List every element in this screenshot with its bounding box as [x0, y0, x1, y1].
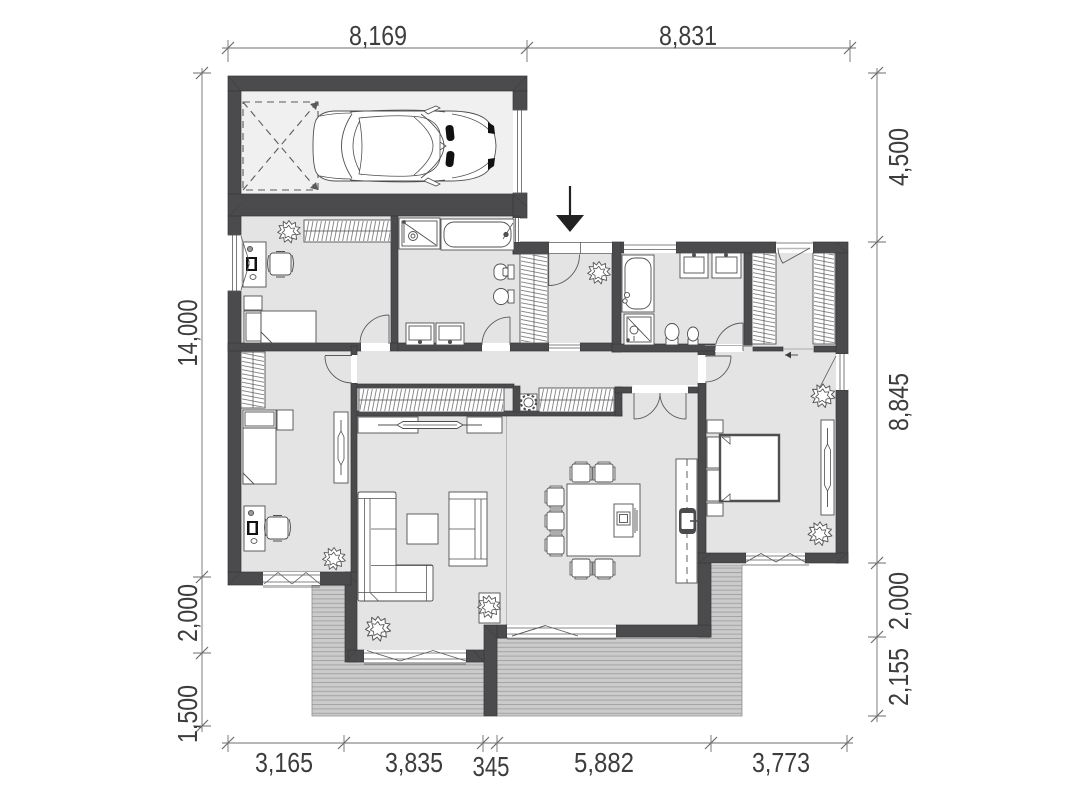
svg-text:4,500: 4,500 [883, 128, 914, 186]
svg-text:1,500: 1,500 [172, 685, 203, 743]
svg-text:2,000: 2,000 [172, 584, 203, 642]
svg-text:345: 345 [473, 751, 510, 782]
svg-text:2,155: 2,155 [883, 648, 914, 706]
svg-text:8,169: 8,169 [349, 20, 407, 51]
svg-text:3,835: 3,835 [385, 747, 443, 778]
svg-text:14,000: 14,000 [172, 300, 203, 367]
svg-text:2,000: 2,000 [883, 572, 914, 630]
svg-text:8,845: 8,845 [883, 373, 914, 431]
svg-text:5,882: 5,882 [574, 747, 634, 778]
svg-text:3,773: 3,773 [752, 747, 810, 778]
svg-text:3,165: 3,165 [255, 747, 313, 778]
svg-text:8,831: 8,831 [659, 20, 717, 51]
